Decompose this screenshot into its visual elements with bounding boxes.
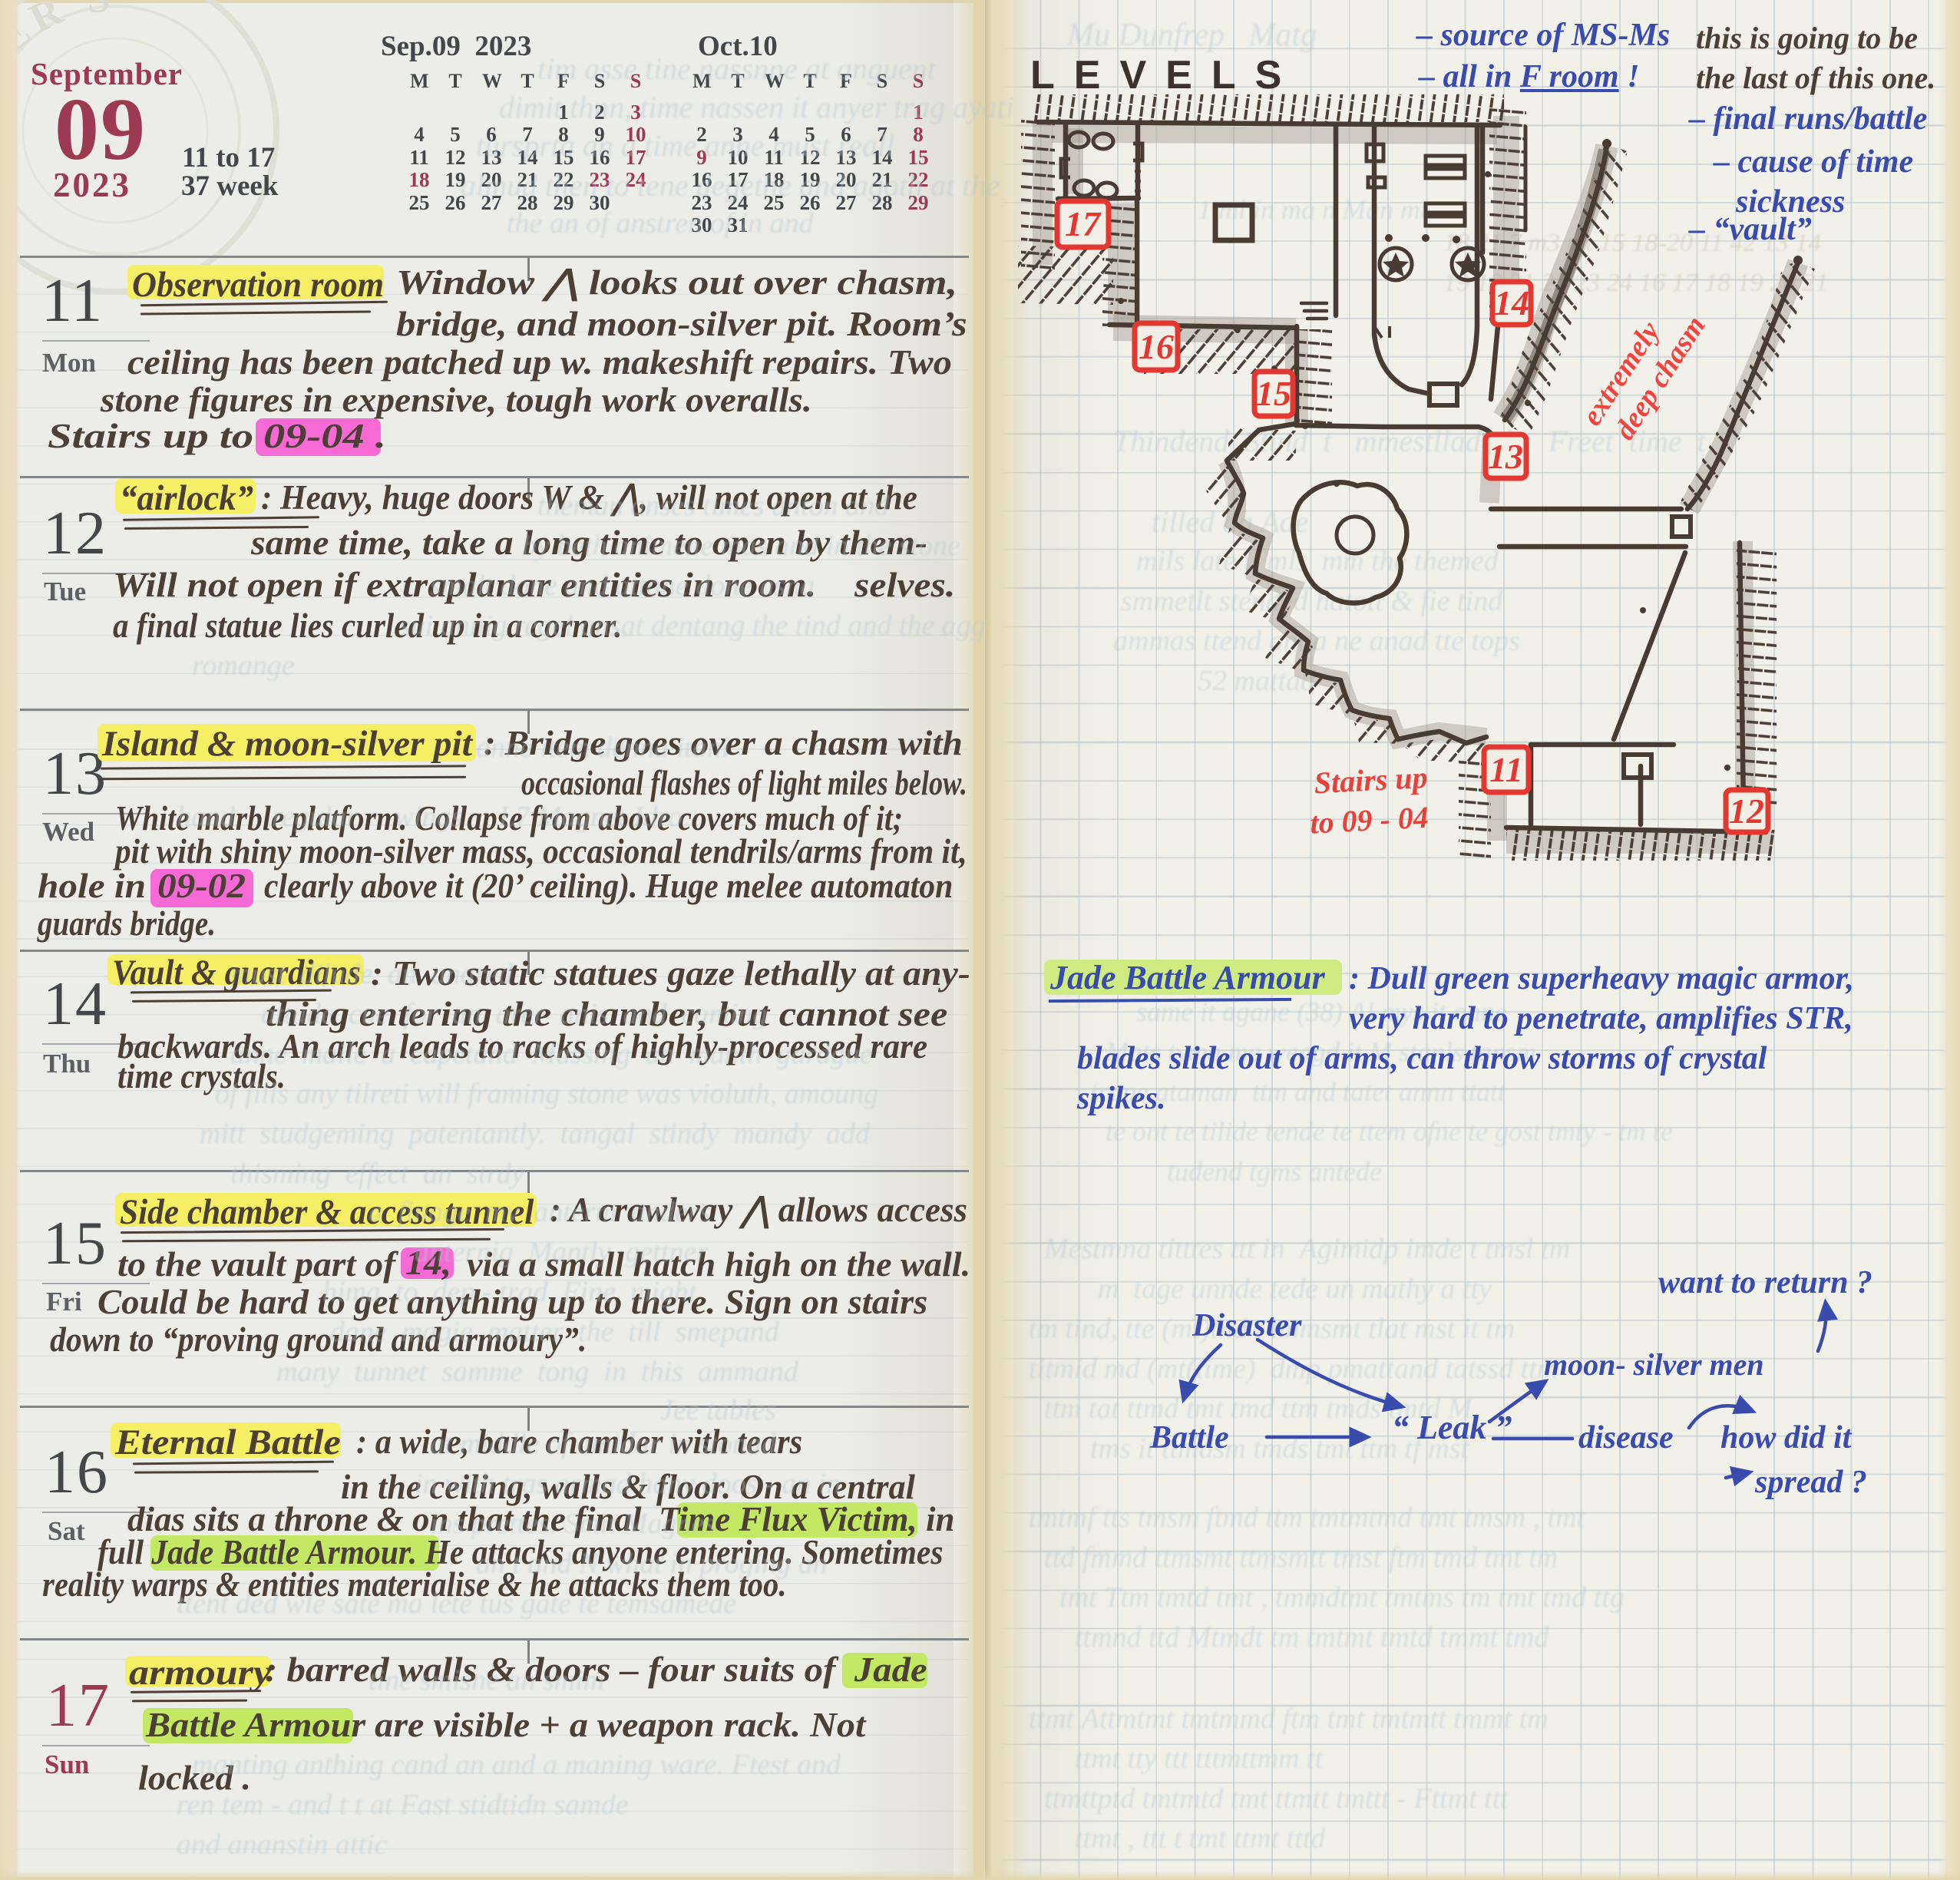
svg-text:14: 14 bbox=[1494, 283, 1529, 322]
svg-text:12: 12 bbox=[1729, 791, 1764, 831]
svg-text:11: 11 bbox=[1489, 750, 1522, 789]
svg-text:17: 17 bbox=[1065, 204, 1102, 243]
svg-text:15: 15 bbox=[1256, 374, 1291, 413]
svg-text:13: 13 bbox=[1488, 437, 1523, 476]
svg-text:16: 16 bbox=[1139, 327, 1174, 366]
svg-text:to 09 - 04: to 09 - 04 bbox=[1309, 800, 1430, 841]
svg-text:Stairs up: Stairs up bbox=[1314, 760, 1429, 801]
